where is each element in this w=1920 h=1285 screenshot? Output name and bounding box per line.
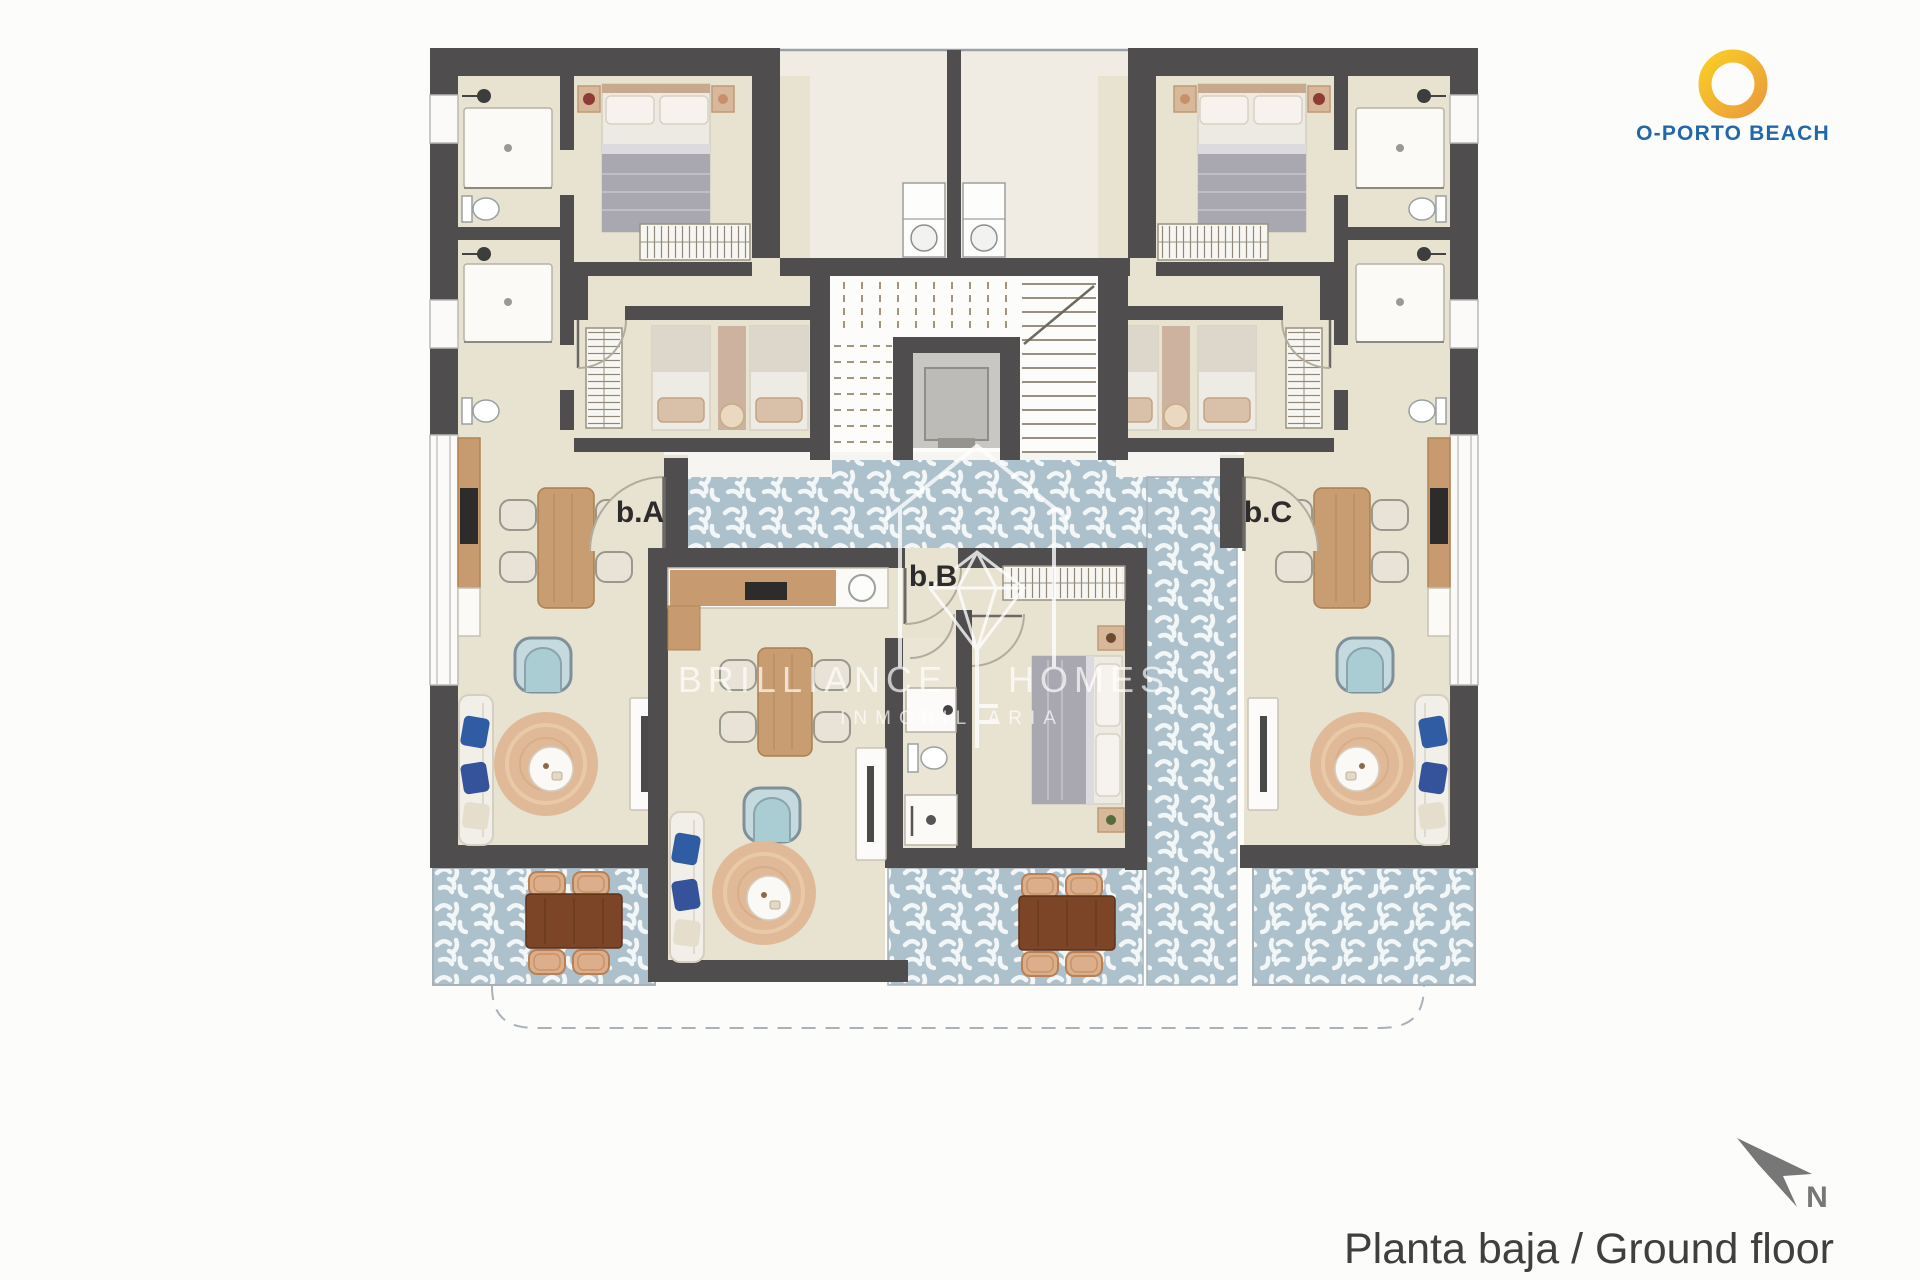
label-unit-b: b.B [909,560,957,593]
watermark-brand-left: BRILLIANCE [678,659,948,700]
floor-plan-canvas: BRILLIANCE HOMES INMOBILIARIA b.A b.B b.… [0,0,1920,1280]
logo-text: O-PORTO BEACH [1636,122,1830,145]
elevator [893,337,1020,460]
toilet [921,747,947,769]
terrace-strip [1147,477,1237,985]
pillow [1096,734,1120,796]
label-unit-a: b.A [616,496,664,529]
label-unit-c: b.C [1244,496,1292,529]
sink [849,575,875,601]
north-label: N [1806,1181,1828,1214]
plan-caption: Planta baja / Ground floor [1344,1225,1834,1273]
watermark-subtitle: INMOBILIARIA [840,708,1064,729]
watermark-brand-right: HOMES [1008,659,1170,700]
cooktop [745,582,787,600]
